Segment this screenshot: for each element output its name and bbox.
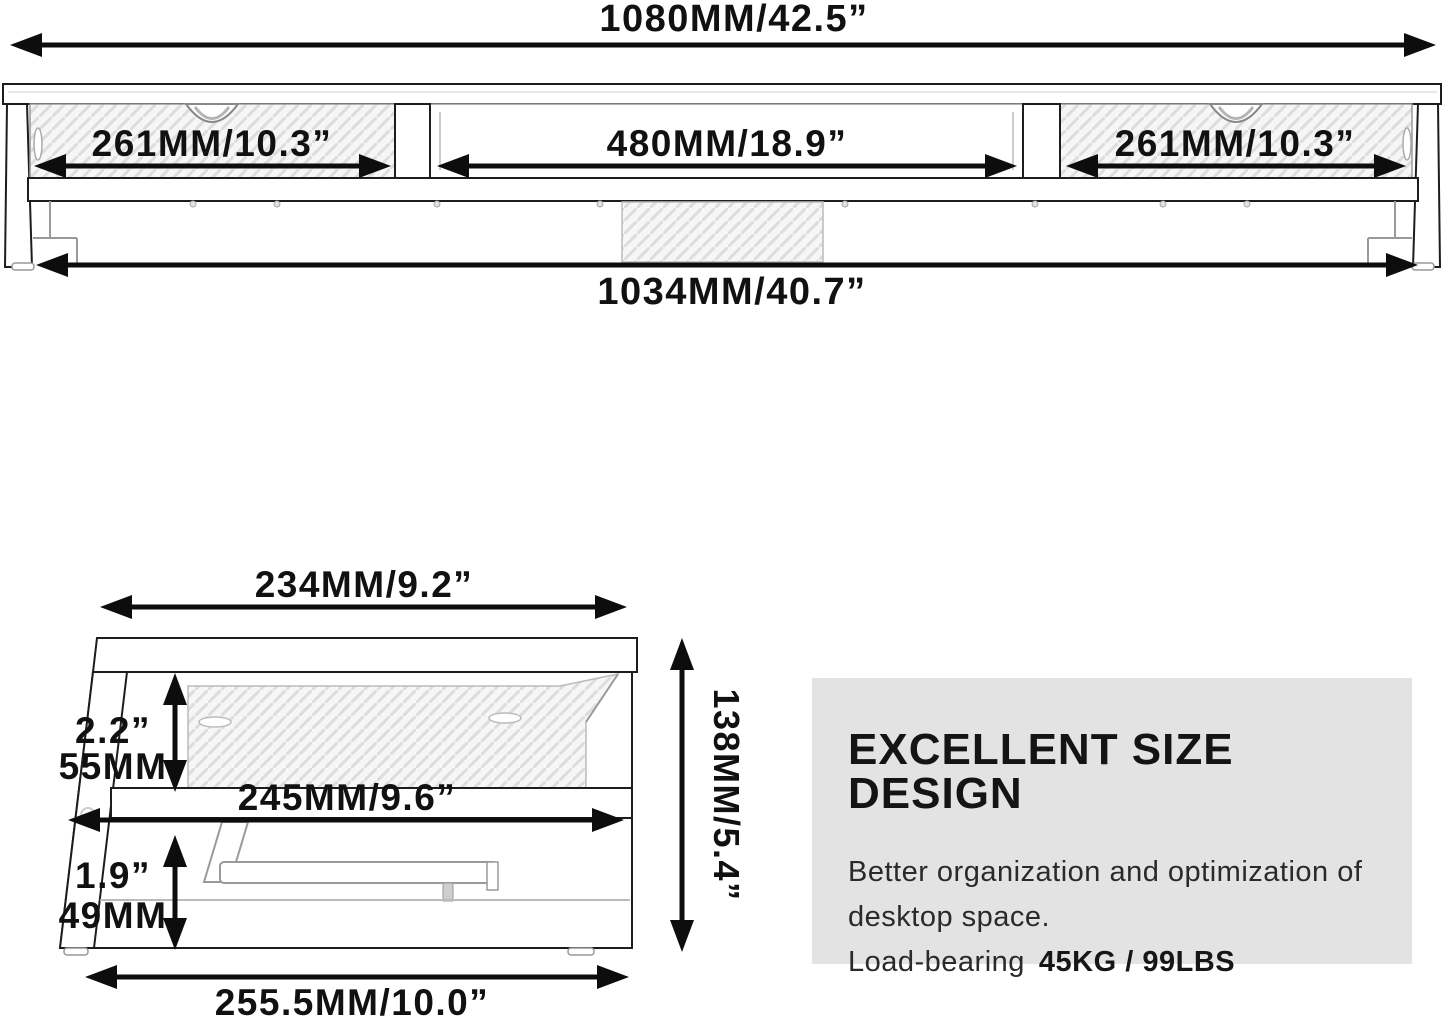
screw-slot-1 [199,717,231,727]
lower-shelf [28,178,1418,201]
info-line1: Better organization and optimization of [848,850,1382,895]
front-view-diagram: 1080MM/42.5” 261MM/10.3” 480MM/18.9” 261… [0,0,1445,330]
center-support-block [622,202,823,262]
info-line2: desktop space. [848,895,1382,940]
shelf-depth-label: 245MM/9.6” [238,777,457,818]
side-top-shelf [93,638,637,672]
lower-clearance-mm: 49MM [59,895,168,936]
info-body: Better organization and optimization of … [848,850,1382,985]
lower-clearance-inches: 1.9” [75,855,151,896]
upper-clearance-mm: 55MM [59,746,168,787]
info-box: EXCELLENT SIZE DESIGN Better organizatio… [812,678,1412,964]
left-divider [395,104,430,180]
info-title: EXCELLENT SIZE DESIGN [848,728,1382,816]
right-wall-slot [1403,128,1411,160]
load-bearing-line: Load-bearing45KG / 99LBS [848,940,1382,985]
side-view-diagram: 234MM/9.2” 2.2” 55MM 245MM/9.6” 1.9” 49M… [0,560,780,1019]
base-width-label: 1034MM/40.7” [597,271,866,313]
left-leg-bracket [33,201,77,264]
right-section-label: 261MM/10.3” [1115,123,1356,164]
load-bearing-label: Load-bearing [848,946,1025,978]
overall-width-label: 1080MM/42.5” [599,0,868,40]
left-foot [12,263,34,270]
side-left-foot [64,948,88,955]
left-wall-slot [34,128,42,160]
screw-slot-2 [489,713,521,723]
side-right-foot [568,948,594,955]
top-shelf-surface [3,84,1441,104]
overall-height-label: 138MM/5.4” [706,688,747,901]
load-bearing-value: 45KG / 99LBS [1039,946,1235,978]
product-dimension-sheet: 1080MM/42.5” 261MM/10.3” 480MM/18.9” 261… [0,0,1445,1019]
left-section-label: 261MM/10.3” [92,123,333,164]
middle-section-label: 480MM/18.9” [607,123,848,164]
base-depth-label: 255.5MM/10.0” [215,982,490,1019]
overall-height-arrow [670,638,694,952]
under-shelf-hatch [188,674,618,790]
top-depth-label: 234MM/9.2” [255,564,474,605]
right-divider [1023,104,1060,180]
upper-clearance-inches: 2.2” [75,710,151,751]
